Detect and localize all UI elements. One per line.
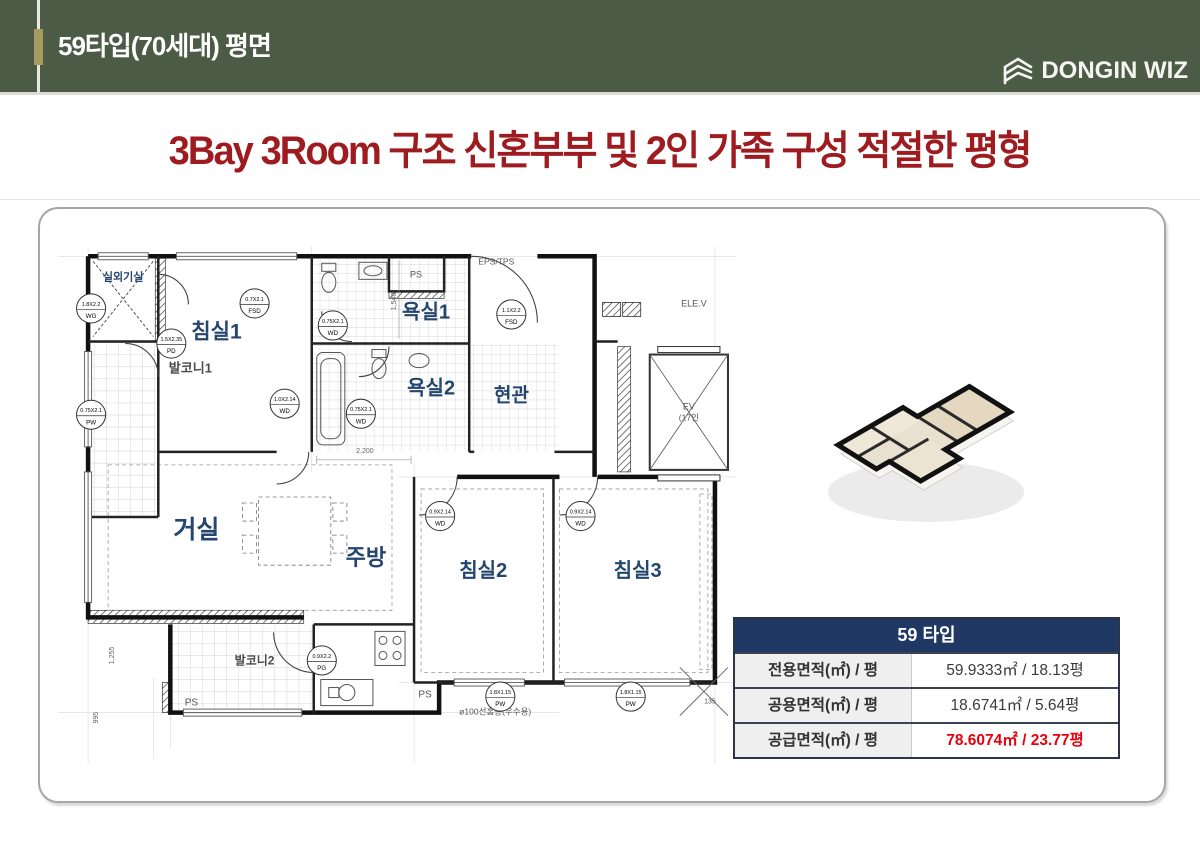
room-label: 실외기실 [103,269,144,283]
dimension-label: 1,255 [109,647,116,665]
door-tag-size: 1.1X2.2 [502,308,521,314]
cad-label: EPS/TPS [478,256,514,266]
door-tag-size: 0.75X2.1 [350,407,372,413]
room-label: 침실3 [614,559,662,582]
common-area-value: 18.6741㎡ / 5.64평 [912,689,1118,722]
company-logo: DONGIN WIZ [1001,56,1188,86]
door-tag-size: 1.8X1.15 [620,690,642,696]
door-tag-size: 0.75X2.1 [80,408,102,414]
room-label: 침실1 [191,320,242,344]
cad-label: (17인 [679,413,699,423]
door-tag-type: WD [328,330,339,337]
exclusive-area-value: 59.9333㎡ / 18.13평 [912,654,1118,687]
door-tag-size: 0.9X2.2 [312,654,331,660]
exclusive-area-label: 전용면적(㎡) / 평 [735,654,912,687]
door-tag-size: 1.8X2.2 [82,302,101,308]
door-tag-type: PG [317,665,326,672]
isometric-floorplan [798,350,1046,548]
table-row: 공급면적(㎡) / 평 78.6074㎡ / 23.77평 [735,722,1118,757]
cad-label: 135 [704,699,716,706]
door-tag-type: PD [167,348,176,355]
door-tag-type: PW [86,419,96,426]
cad-label: ELE.V [681,298,707,308]
header-accent-bar [34,29,43,65]
cad-label: PS [185,698,199,709]
table-row: 공용면적(㎡) / 평 18.6741㎡ / 5.64평 [735,687,1118,722]
cad-label: PS [410,269,422,279]
room-label: 욕실2 [407,377,455,400]
door-tag-size: 1.0X2.14 [274,397,296,403]
supply-area-label: 공급면적(㎡) / 평 [735,724,912,757]
door-tag-size: 0.9X2.14 [570,510,592,516]
door-tag-type: WD [356,418,367,425]
headline-text: 3Bay 3Room 구조 신혼부부 및 2인 가족 구성 적절한 평형 [169,118,1031,176]
door-tag-size: 1.5X2.35 [161,337,183,343]
slide: 59타입(70세대) 평면 DONGIN WIZ 3Bay 3Room 구조 신… [0,0,1200,842]
door-tag-type: PW [626,701,636,708]
room-label: 발코니1 [169,361,212,376]
room-label: 주방 [346,545,387,570]
table-row: 전용면적(㎡) / 평 59.9333㎡ / 18.13평 [735,652,1118,687]
room-label: 현관 [494,385,530,407]
door-tag-type: WD [279,408,290,415]
door-tag-type: FSD [248,308,261,315]
room-label: 욕실1 [402,300,450,323]
door-tag-size: 0.75X2.1 [322,319,344,325]
common-area-label: 공용면적(㎡) / 평 [735,689,912,722]
dimension-label: 2,200 [356,448,374,455]
door-tag-type: WD [435,521,446,528]
cad-label: EV [683,402,695,412]
door-tag-type: WG [86,313,97,320]
door-tag-size: 0.7X2.1 [245,297,264,303]
dimension-label: 995 [93,712,100,724]
door-tag-type: PW [495,701,505,708]
room-label: 거실 [173,516,219,544]
building-logo-icon [1001,56,1035,86]
door-tag-size: 1.8X1.15 [489,690,511,696]
thin-rule [0,199,1200,200]
spec-table: 59 타입 전용면적(㎡) / 평 59.9333㎡ / 18.13평 공용면적… [733,617,1120,759]
logo-text: DONGIN WIZ [1041,57,1188,85]
floorplan-drawing: 실외기실침실1욕실1욕실2현관거실주방침실2침실3발코니1발코니2 PSEPS/… [58,246,736,764]
cad-label: PS [418,690,432,701]
spec-table-header: 59 타입 [735,619,1118,652]
dimension-label: 1,540 [391,293,398,311]
slide-header: 59타입(70세대) 평면 DONGIN WIZ [0,0,1200,95]
room-label: 발코니2 [235,652,275,667]
headline: 3Bay 3Room 구조 신혼부부 및 2인 가족 구성 적절한 평형 [0,118,1200,176]
room-label: 침실2 [459,559,507,582]
page-title: 59타입(70세대) 평면 [58,26,271,63]
door-tag-type: FSD [505,319,518,326]
door-tag-size: 0.9X2.14 [429,510,451,516]
door-tag-type: WD [575,521,586,528]
supply-area-value: 78.6074㎡ / 23.77평 [912,724,1118,757]
